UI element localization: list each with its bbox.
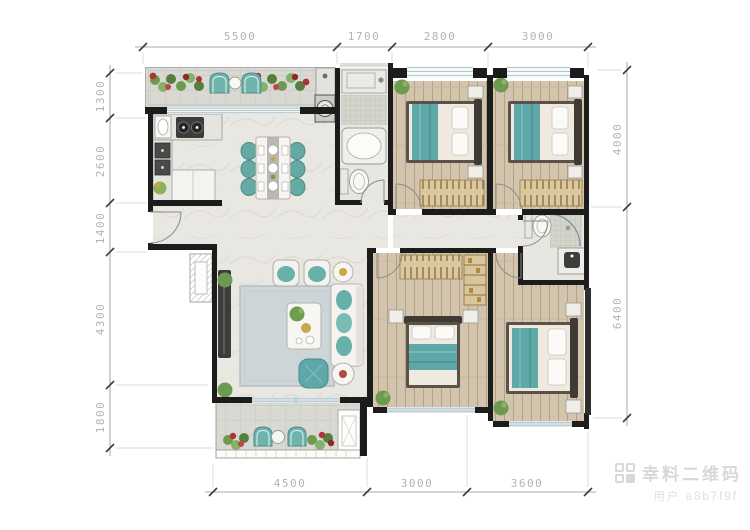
bathroom1-shower-mosaic — [341, 95, 387, 125]
dim-label-left-4: 1800 — [94, 401, 107, 434]
plant-icon — [395, 80, 410, 95]
laundry-rail — [340, 64, 388, 66]
sofa — [331, 284, 363, 366]
nightstand — [389, 310, 403, 323]
master-window-south — [509, 421, 572, 427]
ac-platform — [190, 254, 212, 302]
pouf — [299, 359, 328, 388]
balcony-chair — [210, 73, 229, 93]
dim-label-left-1: 2600 — [94, 145, 107, 178]
nightstand — [568, 86, 582, 98]
qr-code-icon — [615, 463, 635, 483]
nightstand — [468, 166, 483, 178]
balcony-sliding-door — [252, 397, 340, 403]
side-table — [332, 363, 354, 385]
watermark-title: 幸料二维码 — [642, 460, 742, 485]
dim-label-top-2: 2800 — [424, 30, 457, 43]
side-table — [333, 262, 353, 282]
dim-label-top-3: 3000 — [522, 30, 555, 43]
hallway-floor — [393, 215, 523, 248]
dim-label-left-3: 4300 — [94, 303, 107, 336]
plant-icon — [494, 78, 509, 93]
balcony-table — [272, 431, 285, 444]
dim-label-top-0: 5500 — [224, 30, 257, 43]
coffee-table — [287, 303, 321, 349]
wardrobe — [420, 180, 484, 206]
nightstand — [468, 86, 483, 98]
laundry-sink-counter — [316, 68, 335, 95]
bed — [506, 318, 578, 398]
dim-label-bottom-0: 4500 — [274, 477, 307, 490]
balcony-chair — [288, 427, 306, 446]
bed — [404, 316, 462, 388]
nightstand — [566, 400, 581, 413]
master-window-east — [585, 288, 591, 415]
balcony-chair — [254, 427, 272, 446]
kitchen-cabinet — [172, 170, 215, 202]
watermark: 幸料二维码 用户 a8b7f9f — [615, 460, 742, 504]
bed — [508, 99, 582, 165]
dim-label-bottom-1: 3000 — [401, 477, 434, 490]
watermark-subtitle: 用户 a8b7f9f — [615, 488, 742, 504]
floor-plan-screenshot: 5500 1700 2800 3000 1300 2600 1400 4300 … — [0, 0, 750, 530]
bedroom2-bay-window — [507, 66, 570, 78]
kitchen-window — [167, 107, 300, 114]
nightstand — [568, 166, 582, 178]
dim-label-bottom-2: 3600 — [511, 477, 544, 490]
shelf-cabinet — [464, 255, 486, 305]
dim-label-right-1: 6400 — [611, 297, 624, 330]
plant-icon — [218, 273, 233, 288]
armchair — [273, 260, 299, 286]
bathroom2-shower-mosaic — [550, 211, 582, 248]
dim-label-left-2: 1400 — [94, 212, 107, 245]
dim-label-left-0: 1300 — [94, 80, 107, 113]
vanity-sink — [564, 252, 580, 268]
bedroom3-window — [387, 407, 475, 413]
balcony-table — [229, 77, 241, 89]
nightstand — [566, 303, 581, 316]
floor-plan-drawing: 5500 1700 2800 3000 1300 2600 1400 4300 … — [0, 0, 750, 530]
wardrobe — [400, 255, 462, 279]
plant-icon — [376, 391, 391, 406]
bed — [406, 99, 482, 165]
dim-label-top-1: 1700 — [348, 30, 381, 43]
plant-icon — [218, 383, 233, 398]
nightstand — [463, 310, 478, 323]
plant-icon — [494, 401, 509, 416]
plant-icon — [154, 182, 167, 195]
decor-panel — [338, 410, 360, 452]
bedroom1-bay-window — [407, 66, 473, 78]
dining-area — [241, 137, 305, 199]
armchair — [304, 260, 330, 286]
wardrobe — [520, 180, 582, 206]
balcony-chair — [242, 73, 261, 93]
front-balcony-floor — [145, 67, 335, 108]
dim-label-right-0: 4000 — [611, 123, 624, 156]
